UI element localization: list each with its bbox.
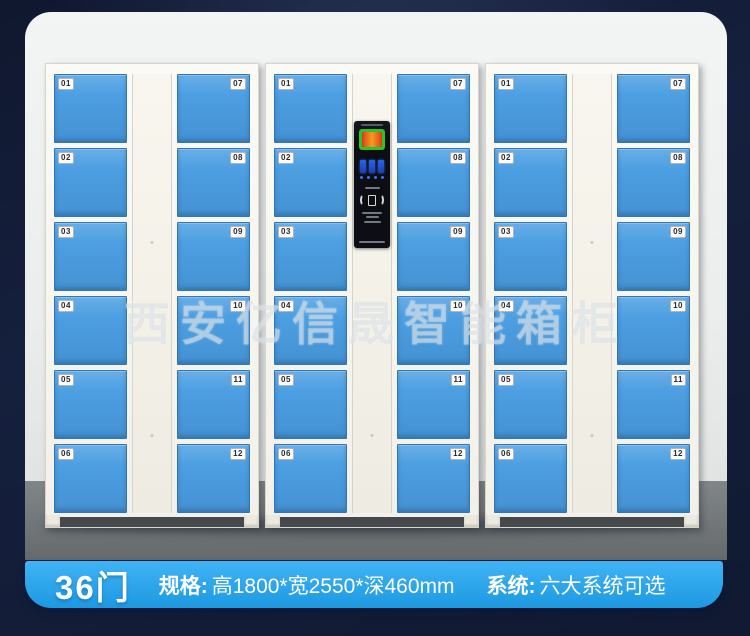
cabinet-foot <box>684 515 698 527</box>
panel-label-line <box>362 212 382 214</box>
right-door-column: 070809101112 <box>177 74 250 513</box>
spec-group: 规格: 高1800*宽2550*深460mm <box>159 570 455 600</box>
door-number-plate: 01 <box>278 78 294 90</box>
door-number-plate: 06 <box>278 448 294 460</box>
left-door-column: 010203040506 <box>274 74 347 513</box>
cabinet-doors: 010203040506070809101112 <box>486 64 698 513</box>
locker-door-10: 10 <box>617 296 690 365</box>
door-number-plate: 03 <box>498 226 514 238</box>
locker-door-08: 08 <box>177 148 250 217</box>
locker-cabinet-3: 010203040506070809101112 <box>485 63 699 528</box>
door-number-plate: 09 <box>450 226 466 238</box>
cabinet-doors: 010203040506070809101112 <box>46 64 258 513</box>
panel-label-line <box>359 241 385 243</box>
door-number-plate: 08 <box>230 152 246 164</box>
locker-door-05: 05 <box>494 370 567 439</box>
door-number-plate: 11 <box>451 374 466 386</box>
door-number-plate: 10 <box>230 300 246 312</box>
locker-door-05: 05 <box>274 370 347 439</box>
door-number-plate: 02 <box>278 152 294 164</box>
cabinet-foot <box>486 515 500 527</box>
door-number-plate: 06 <box>498 448 514 460</box>
door-number-plate: 09 <box>670 226 686 238</box>
locker-door-06: 06 <box>274 444 347 513</box>
panel-label-line <box>365 187 380 189</box>
door-number-plate: 02 <box>58 152 74 164</box>
right-door-column: 070809101112 <box>397 74 470 513</box>
door-number-plate: 05 <box>58 374 74 386</box>
cabinet-base <box>266 511 478 527</box>
door-number-plate: 09 <box>230 226 246 238</box>
right-door-column: 070809101112 <box>617 74 690 513</box>
locker-door-07: 07 <box>397 74 470 143</box>
door-number-plate: 04 <box>278 300 294 312</box>
locker-cabinet-row: 0102030405060708091011120102030405060708… <box>45 63 699 528</box>
door-number-plate: 12 <box>450 448 466 460</box>
locker-door-01: 01 <box>494 74 567 143</box>
left-door-column: 010203040506 <box>54 74 127 513</box>
control-panel <box>354 121 390 248</box>
panel-label-line <box>366 216 379 218</box>
cabinet-foot <box>266 515 280 527</box>
center-strip <box>132 74 172 513</box>
door-number-plate: 01 <box>498 78 514 90</box>
door-number-plate: 10 <box>450 300 466 312</box>
cabinet-doors: 010203040506070809101112 <box>266 64 478 513</box>
cabinet-base <box>46 511 258 527</box>
locker-door-09: 09 <box>617 222 690 291</box>
cabinet-plinth <box>500 517 684 527</box>
door-number-plate: 04 <box>58 300 74 312</box>
door-number-plate: 03 <box>278 226 294 238</box>
door-number-plate: 11 <box>671 374 686 386</box>
locker-door-02: 02 <box>274 148 347 217</box>
locker-door-03: 03 <box>494 222 567 291</box>
left-door-column: 010203040506 <box>494 74 567 513</box>
keypad <box>360 160 384 173</box>
locker-door-10: 10 <box>397 296 470 365</box>
rfid-reader-icon <box>360 194 384 206</box>
locker-door-01: 01 <box>274 74 347 143</box>
locker-door-07: 07 <box>617 74 690 143</box>
door-number-plate: 01 <box>58 78 74 90</box>
cabinet-plinth <box>280 517 464 527</box>
cabinet-base <box>486 511 698 527</box>
locker-door-10: 10 <box>177 296 250 365</box>
locker-door-04: 04 <box>274 296 347 365</box>
locker-door-11: 11 <box>177 370 250 439</box>
cabinet-foot <box>244 515 258 527</box>
door-number-plate: 10 <box>670 300 686 312</box>
locker-door-09: 09 <box>177 222 250 291</box>
locker-cabinet-2: 010203040506070809101112 <box>265 63 479 528</box>
product-image: { "watermark": { "text": "西安亿信晟智能箱柜" }, … <box>0 0 750 636</box>
locker-door-12: 12 <box>397 444 470 513</box>
door-number-plate: 03 <box>58 226 74 238</box>
door-number-plate: 11 <box>231 374 246 386</box>
locker-door-02: 02 <box>54 148 127 217</box>
locker-door-08: 08 <box>617 148 690 217</box>
door-number-plate: 12 <box>670 448 686 460</box>
spec-value: 高1800*宽2550*深460mm <box>212 570 455 600</box>
door-number-plate: 07 <box>450 78 466 90</box>
speaker-grille-icon <box>361 124 383 126</box>
center-strip <box>352 74 392 513</box>
locker-door-06: 06 <box>494 444 567 513</box>
locker-door-12: 12 <box>617 444 690 513</box>
panel-label-line <box>364 221 381 223</box>
locker-door-05: 05 <box>54 370 127 439</box>
locker-door-12: 12 <box>177 444 250 513</box>
spec-banner: 36门 规格: 高1800*宽2550*深460mm 系统: 六大系统可选 <box>25 561 723 608</box>
locker-door-04: 04 <box>54 296 127 365</box>
locker-door-09: 09 <box>397 222 470 291</box>
locker-door-07: 07 <box>177 74 250 143</box>
locker-door-08: 08 <box>397 148 470 217</box>
door-number-plate: 06 <box>58 448 74 460</box>
cabinet-plinth <box>60 517 244 527</box>
door-number-plate: 07 <box>230 78 246 90</box>
display-screen <box>359 129 385 150</box>
door-number-plate: 05 <box>498 374 514 386</box>
locker-cabinet-1: 010203040506070809101112 <box>45 63 259 528</box>
door-number-plate: 04 <box>498 300 514 312</box>
locker-door-11: 11 <box>617 370 690 439</box>
spec-label: 规格: <box>159 570 208 600</box>
locker-door-02: 02 <box>494 148 567 217</box>
showroom-scene: 0102030405060708091011120102030405060708… <box>25 12 727 560</box>
keypad-dots <box>360 176 384 179</box>
system-label: 系统: <box>487 570 536 600</box>
door-number-plate: 07 <box>670 78 686 90</box>
door-number-plate: 05 <box>278 374 294 386</box>
system-group: 系统: 六大系统可选 <box>487 570 666 600</box>
cabinet-foot <box>46 515 60 527</box>
door-number-plate: 08 <box>670 152 686 164</box>
door-number-plate: 08 <box>450 152 466 164</box>
locker-door-01: 01 <box>54 74 127 143</box>
center-strip <box>572 74 612 513</box>
system-value: 六大系统可选 <box>540 570 666 600</box>
locker-door-11: 11 <box>397 370 470 439</box>
door-number-plate: 02 <box>498 152 514 164</box>
locker-door-04: 04 <box>494 296 567 365</box>
door-number-plate: 12 <box>230 448 246 460</box>
locker-door-03: 03 <box>54 222 127 291</box>
locker-door-06: 06 <box>54 444 127 513</box>
cabinet-foot <box>464 515 478 527</box>
locker-door-03: 03 <box>274 222 347 291</box>
door-count-badge: 36门 <box>55 561 131 609</box>
